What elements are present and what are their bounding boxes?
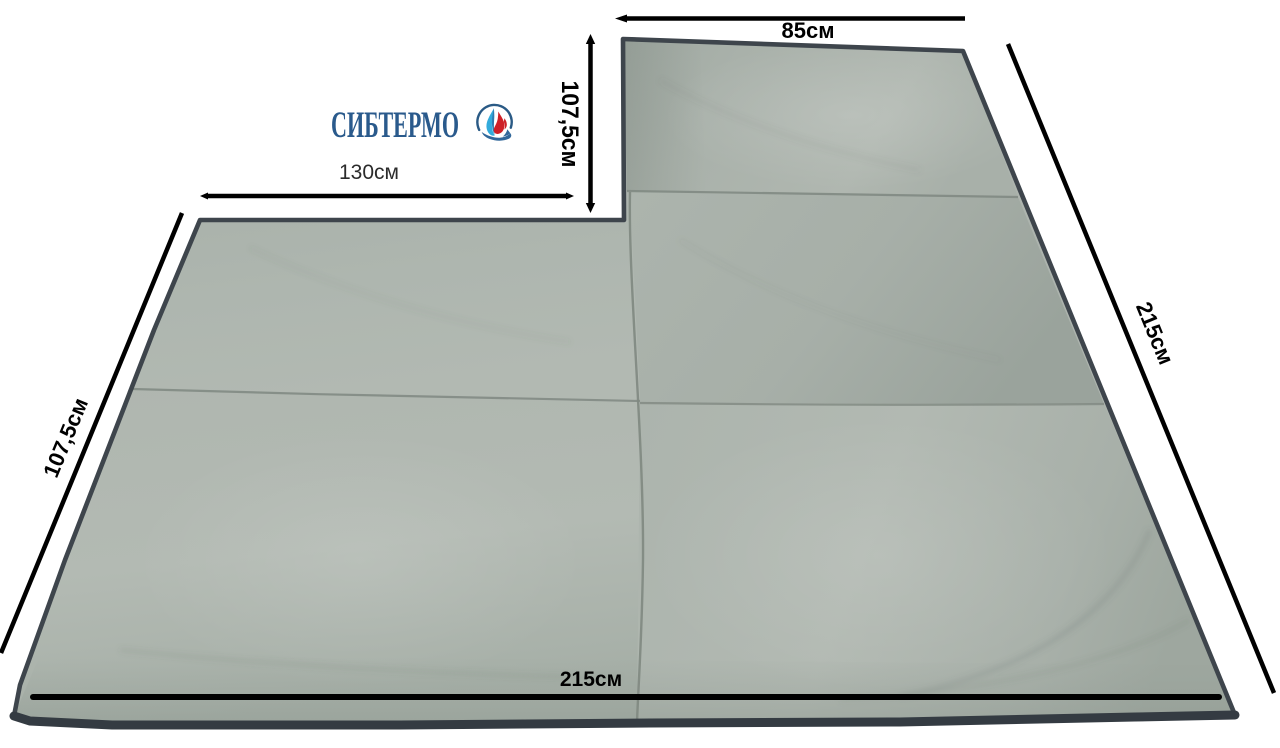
svg-text:107,5см: 107,5см <box>556 81 583 168</box>
svg-text:215см: 215см <box>560 668 622 691</box>
svg-text:СИБТЕРМО: СИБТЕРМО <box>331 105 459 146</box>
svg-text:130см: 130см <box>339 161 399 184</box>
svg-text:85см: 85см <box>782 18 835 43</box>
